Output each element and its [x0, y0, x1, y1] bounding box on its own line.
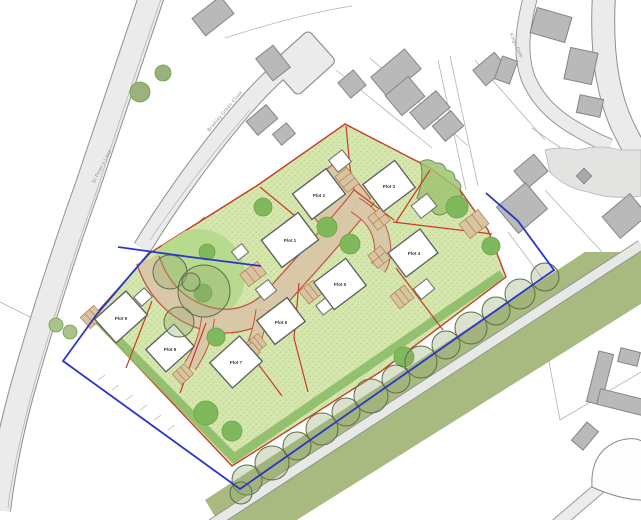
- plot-9-label: Plot 9: [115, 316, 128, 321]
- plot-3-label: Plot 3: [383, 184, 396, 189]
- plot-1-label: Plot 1: [284, 238, 297, 243]
- plot-2-label: Plot 2: [313, 193, 326, 198]
- site-plan-drawing: Plot 1 Plot 2 Plot 3 Plot 4 Plot 5 Plot …: [0, 0, 641, 520]
- plot-7-label: Plot 7: [230, 360, 243, 365]
- st-peters-lane-road: [0, 0, 162, 510]
- paved-courtyard: [545, 147, 641, 197]
- plot-6-label: Plot 6: [275, 320, 288, 325]
- plot-5-label: Plot 5: [334, 282, 347, 287]
- plot-8-label: Plot 8: [164, 347, 177, 352]
- plot-4-label: Plot 4: [408, 251, 421, 256]
- site-plan-canvas: Plot 1 Plot 2 Plot 3 Plot 4 Plot 5 Plot …: [0, 0, 641, 520]
